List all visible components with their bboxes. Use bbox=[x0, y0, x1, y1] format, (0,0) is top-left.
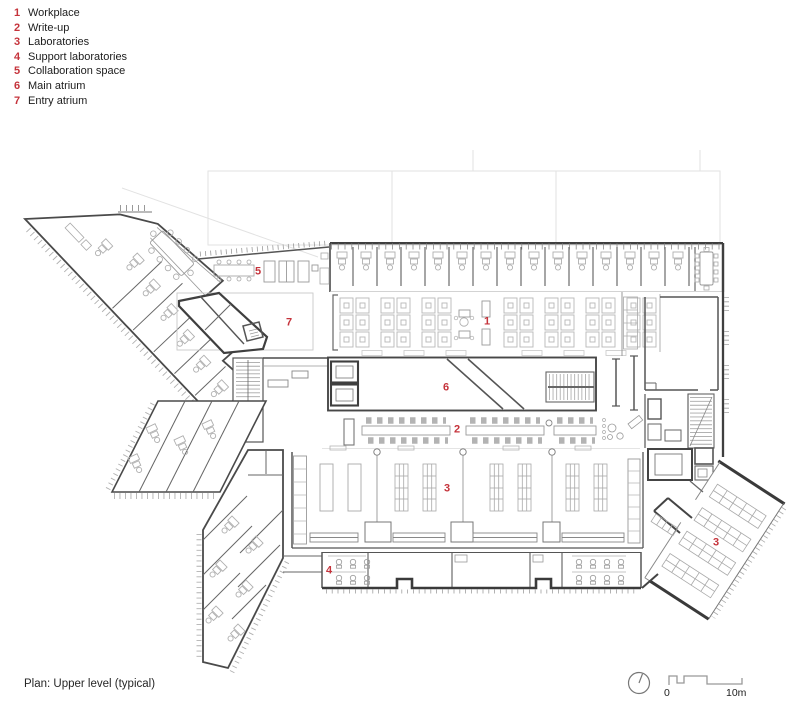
legend-label: Main atrium bbox=[28, 79, 85, 94]
legend-number: 2 bbox=[14, 21, 28, 36]
plan-label-main-atrium: 6 bbox=[443, 381, 449, 393]
legend-number: 6 bbox=[14, 79, 28, 94]
legend-item: 3Laboratories bbox=[14, 35, 127, 50]
legend: 1Workplace 2Write-up 3Laboratories 4Supp… bbox=[14, 6, 127, 108]
legend-item: 1Workplace bbox=[14, 6, 127, 21]
plan-caption: Plan: Upper level (typical) bbox=[24, 678, 155, 690]
support-laboratories bbox=[322, 552, 641, 592]
right-wing bbox=[612, 243, 727, 480]
legend-item: 2Write-up bbox=[14, 21, 127, 36]
legend-number: 7 bbox=[14, 94, 28, 109]
legend-label: Workplace bbox=[28, 6, 80, 21]
roof-outline bbox=[122, 150, 720, 257]
legend-number: 5 bbox=[14, 64, 28, 79]
plan-label-laboratories: 3 bbox=[444, 482, 450, 494]
legend-label: Support laboratories bbox=[28, 50, 127, 65]
legend-item: 5Collaboration space bbox=[14, 64, 127, 79]
scale-bar bbox=[669, 676, 742, 685]
plan-label-workplace: 1 bbox=[484, 315, 490, 327]
main-atrium bbox=[328, 358, 596, 411]
legend-label: Collaboration space bbox=[28, 64, 125, 79]
collaboration-space bbox=[198, 243, 329, 282]
floor-plan-page: 1Workplace 2Write-up 3Laboratories 4Supp… bbox=[0, 0, 800, 727]
legend-item: 4Support laboratories bbox=[14, 50, 127, 65]
floor-plan-drawing bbox=[0, 0, 800, 727]
write-up bbox=[344, 415, 643, 445]
scale-zero-label: 0 bbox=[664, 687, 670, 699]
plan-label-write-up: 2 bbox=[454, 423, 460, 435]
plan-label-collaboration: 5 bbox=[255, 265, 261, 277]
plan-label-laboratories-east: 3 bbox=[713, 536, 719, 548]
legend-item: 7Entry atrium bbox=[14, 94, 127, 109]
scale-ten-label: 10m bbox=[726, 687, 746, 699]
plan-label-support-labs: 4 bbox=[326, 564, 332, 576]
scale-figure bbox=[629, 673, 743, 694]
legend-label: Write-up bbox=[28, 21, 69, 36]
legend-label: Entry atrium bbox=[28, 94, 87, 109]
workplace bbox=[333, 294, 660, 356]
legend-label: Laboratories bbox=[28, 35, 89, 50]
plan-label-entry-atrium: 7 bbox=[286, 316, 292, 328]
legend-number: 1 bbox=[14, 6, 28, 21]
top-office-wing bbox=[320, 243, 723, 292]
legend-number: 4 bbox=[14, 50, 28, 65]
legend-item: 6Main atrium bbox=[14, 79, 127, 94]
laboratories bbox=[292, 446, 643, 548]
legend-number: 3 bbox=[14, 35, 28, 50]
